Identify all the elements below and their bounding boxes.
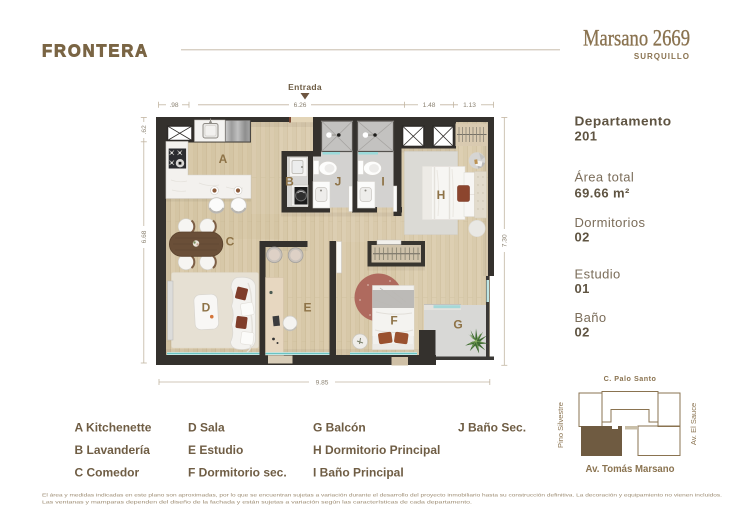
svg-text:Pino Silvestre: Pino Silvestre (556, 402, 565, 448)
svg-text:Baño: Baño (575, 310, 607, 325)
svg-text:Estudio: Estudio (575, 267, 621, 282)
svg-text:I: I (381, 175, 384, 189)
svg-text:F: F (390, 314, 397, 328)
svg-text:Departamento: Departamento (575, 114, 672, 129)
svg-text:6.26: 6.26 (294, 102, 307, 109)
svg-text:01: 01 (575, 281, 590, 296)
svg-text:C. Palo Santo: C. Palo Santo (604, 374, 657, 383)
svg-text:El área y medidas indicadas en: El área y medidas indicadas en este plan… (42, 492, 722, 498)
svg-text:SURQUILLO: SURQUILLO (634, 52, 690, 61)
svg-text:J Baño Sec.: J Baño Sec. (458, 421, 526, 435)
svg-text:E Estudio: E Estudio (188, 443, 243, 457)
svg-text:Av. El Sauce: Av. El Sauce (689, 403, 698, 445)
svg-text:J: J (335, 175, 342, 189)
svg-text:Marsano 2669: Marsano 2669 (583, 26, 690, 51)
svg-text:.98: .98 (169, 102, 178, 109)
svg-text:1.48: 1.48 (423, 102, 436, 109)
svg-text:A Kitchenette: A Kitchenette (75, 421, 152, 435)
svg-text:B Lavandería: B Lavandería (75, 443, 151, 457)
svg-text:FRONTERA: FRONTERA (42, 41, 149, 61)
svg-text:G: G (453, 318, 462, 332)
svg-text:Área total: Área total (575, 170, 635, 185)
svg-text:D: D (202, 301, 211, 315)
svg-text:C Comedor: C Comedor (75, 466, 140, 480)
svg-text:I Baño Principal: I Baño Principal (313, 466, 404, 480)
svg-text:9.85: 9.85 (316, 379, 329, 386)
svg-text:C: C (226, 235, 235, 249)
svg-text:H: H (437, 188, 446, 202)
svg-text:02: 02 (575, 325, 590, 340)
svg-text:D Sala: D Sala (188, 421, 225, 435)
svg-text:G Balcón: G Balcón (313, 421, 366, 435)
svg-text:A: A (219, 152, 228, 166)
svg-text:Dormitorios: Dormitorios (575, 215, 646, 230)
svg-text:Las ventanas y mamparas depend: Las ventanas y mamparas dependen del dis… (42, 499, 472, 505)
svg-text:69.66 m²: 69.66 m² (575, 186, 631, 201)
svg-text:E: E (303, 301, 311, 315)
svg-text:F Dormitorio sec.: F Dormitorio sec. (188, 466, 287, 480)
svg-text:02: 02 (575, 230, 590, 245)
svg-text:201: 201 (575, 129, 598, 144)
svg-text:6.68: 6.68 (141, 230, 148, 243)
svg-text:Av. Tomás Marsano: Av. Tomás Marsano (586, 463, 675, 475)
svg-text:.62: .62 (141, 125, 148, 134)
svg-text:B: B (285, 175, 294, 189)
svg-text:1.13: 1.13 (463, 102, 476, 109)
svg-text:7.30: 7.30 (502, 234, 509, 247)
svg-text:Entrada: Entrada (288, 82, 322, 92)
svg-text:H Dormitorio Principal: H Dormitorio Principal (313, 443, 440, 457)
